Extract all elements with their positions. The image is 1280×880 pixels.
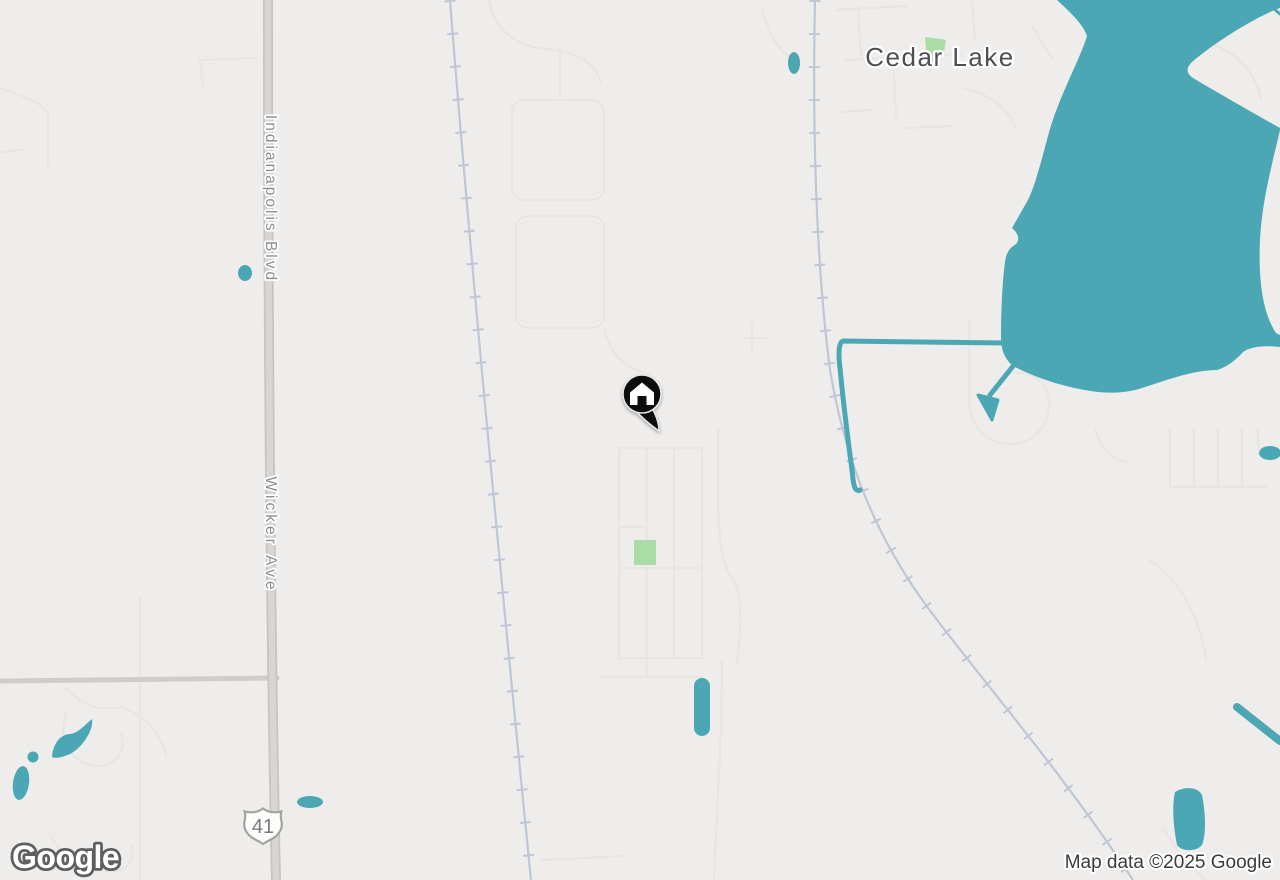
map-canvas[interactable]: 41 Indianapolis Blvd Wicker Ave Cedar La…	[0, 0, 1280, 880]
map-data-attribution: Map data ©2025 Google	[1065, 852, 1272, 873]
google-logo[interactable]: Google	[12, 839, 119, 875]
route-shield-number: 41	[252, 816, 274, 838]
road-label-wicker-ave: Wicker Ave	[262, 476, 279, 593]
pond-capsule	[694, 678, 710, 736]
pond-north	[788, 52, 800, 74]
pond-blvd	[238, 265, 252, 281]
pond-bottom-right	[1173, 788, 1205, 850]
park-square	[634, 540, 656, 565]
road-label-indianapolis-blvd: Indianapolis Blvd	[262, 115, 279, 283]
pond-east-edge	[1259, 446, 1280, 460]
pond-dot	[28, 752, 39, 763]
pond-route41	[297, 796, 323, 808]
place-label-cedar-lake: Cedar Lake	[865, 42, 1014, 72]
road-cross-street	[0, 678, 277, 681]
